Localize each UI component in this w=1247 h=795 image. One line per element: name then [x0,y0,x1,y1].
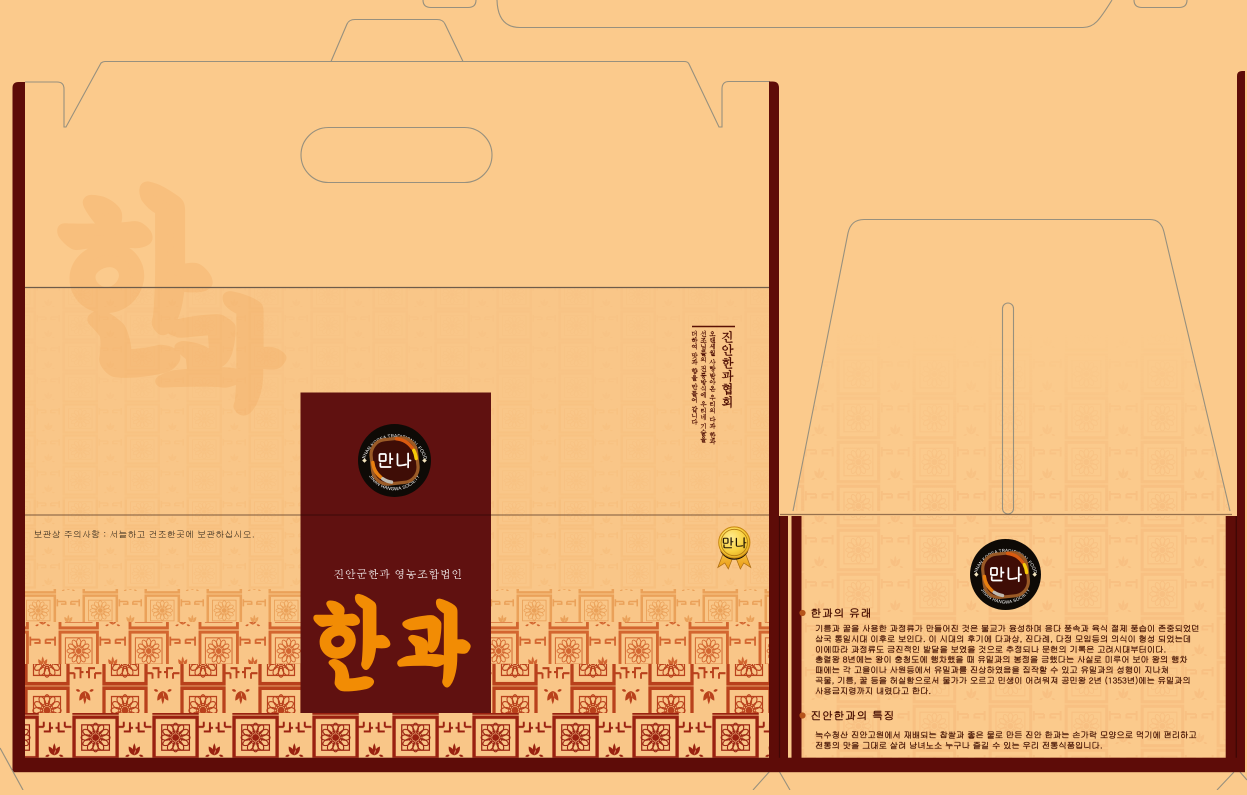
svg-text:진안군한과 영농조합법인: 진안군한과 영농조합법인 [333,566,462,582]
svg-text:만나: 만나 [721,532,747,551]
svg-text:진안한과협회: 진안한과협회 [721,329,733,411]
svg-text:진안한과의 특징: 진안한과의 특징 [811,708,895,724]
svg-text:선조님들의전통방식에우리네기술을: 선조님들의전통방식에우리네기술을 [700,329,707,444]
svg-text:한과의 유래: 한과의 유래 [811,605,872,621]
svg-text:기름과 꿀을 사용한 과정류가 만들어진 것은 불교가 융성: 기름과 꿀을 사용한 과정류가 만들어진 것은 불교가 융성하며 음다 풍속과 … [815,624,1199,635]
svg-text:전통의 맛을 그대로 살려 남녀노소 누구나 즐길 수 있는: 전통의 맛을 그대로 살려 남녀노소 누구나 즐길 수 있는 우리 전통식품입니… [815,741,1103,752]
svg-text:때에는 각 고을이나 사원등에서 유밀과를 진상하였음을 짐: 때에는 각 고을이나 사원등에서 유밀과를 진상하였음을 짐작할 수 있고 유밀… [815,665,1169,676]
svg-text:곡물, 기름, 꿀 등을 허실함으로서 물가가 오르고 민생: 곡물, 기름, 꿀 등을 허실함으로서 물가가 오르고 민생이 어려워져 공민왕… [815,676,1191,687]
svg-text:삼국 통일시대 이후로 보인다. 이 시대의 후기에 다과상: 삼국 통일시대 이후로 보인다. 이 시대의 후기에 다과상, 진다례, 다정 … [815,634,1191,645]
svg-text:총렬왕 8년에는 왕이 충청도에 행차했을 때 유밀과의 봉: 총렬왕 8년에는 왕이 충청도에 행차했을 때 유밀과의 봉정을 금했다는 사실… [815,655,1188,666]
svg-text:더하여맛과향을만들어갑니다: 더하여맛과향을만들어갑니다 [691,329,698,426]
svg-text:녹수청산 진안고원에서 재배되는 찹쌀과 좋은 물로 만든: 녹수청산 진안고원에서 재배되는 찹쌀과 좋은 물로 만든 진안 한과는 손가락… [815,730,1197,741]
svg-text:한과: 한과 [313,595,479,690]
svg-text:사용금지령까지 내렸다고 한다.: 사용금지령까지 내렸다고 한다. [815,686,931,697]
svg-text:이에따라 과정류도 금진적인 발달을 보였을 것으로 추정되: 이에따라 과정류도 금진적인 발달을 보였을 것으로 추정되나 문헌의 기록은 … [815,644,1166,655]
svg-text:오랜세월사랑받아온우리의다과한과: 오랜세월사랑받아온우리의다과한과 [708,329,716,446]
svg-text:보관상 주의사항 : 서늘하고 건조한곳에 보관하십시오.: 보관상 주의사항 : 서늘하고 건조한곳에 보관하십시오. [34,528,255,541]
